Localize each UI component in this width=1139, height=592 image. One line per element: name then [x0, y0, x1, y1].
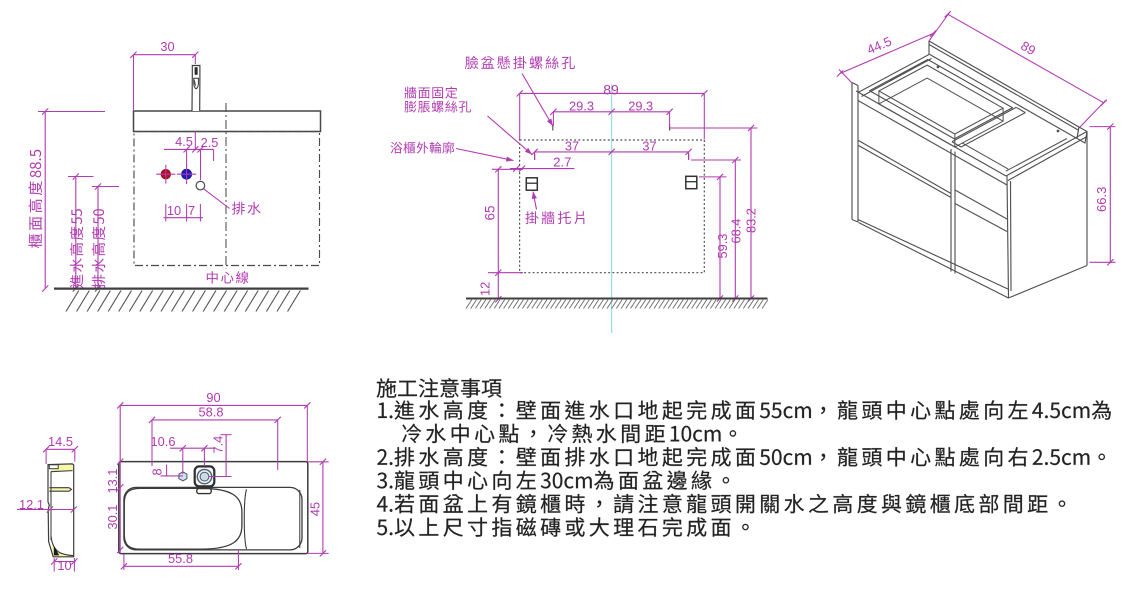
- svg-text:58.8: 58.8: [199, 405, 224, 420]
- svg-text:29.3: 29.3: [628, 98, 653, 113]
- svg-text:14.5: 14.5: [48, 434, 73, 449]
- svg-text:55.8: 55.8: [168, 551, 193, 566]
- svg-text:37: 37: [565, 138, 579, 153]
- svg-text:68.4: 68.4: [729, 219, 744, 244]
- svg-text:10: 10: [167, 203, 181, 218]
- svg-text:44.5: 44.5: [865, 33, 894, 57]
- svg-text:45: 45: [308, 502, 323, 516]
- svg-text:89: 89: [603, 82, 619, 98]
- svg-text:83.2: 83.2: [744, 208, 759, 233]
- svg-text:65: 65: [483, 205, 498, 220]
- svg-text:10.6: 10.6: [151, 434, 176, 449]
- svg-text:10: 10: [57, 558, 71, 573]
- svg-text:12.1: 12.1: [19, 497, 44, 512]
- svg-text:7: 7: [188, 203, 195, 218]
- svg-text:66.3: 66.3: [1094, 187, 1109, 212]
- svg-text:13.1: 13.1: [105, 469, 120, 494]
- svg-text:37: 37: [642, 138, 656, 153]
- svg-text:2.5: 2.5: [201, 135, 219, 150]
- svg-text:7.4: 7.4: [210, 436, 225, 454]
- svg-text:30: 30: [160, 39, 174, 54]
- svg-text:30.1: 30.1: [105, 505, 120, 530]
- svg-text:12: 12: [478, 282, 493, 296]
- svg-text:2.7: 2.7: [553, 155, 571, 170]
- svg-text:4.5: 4.5: [175, 134, 193, 149]
- svg-text:8: 8: [150, 468, 165, 475]
- svg-text:90: 90: [206, 390, 220, 405]
- svg-text:29.3: 29.3: [569, 98, 594, 113]
- svg-text:89: 89: [1018, 38, 1038, 58]
